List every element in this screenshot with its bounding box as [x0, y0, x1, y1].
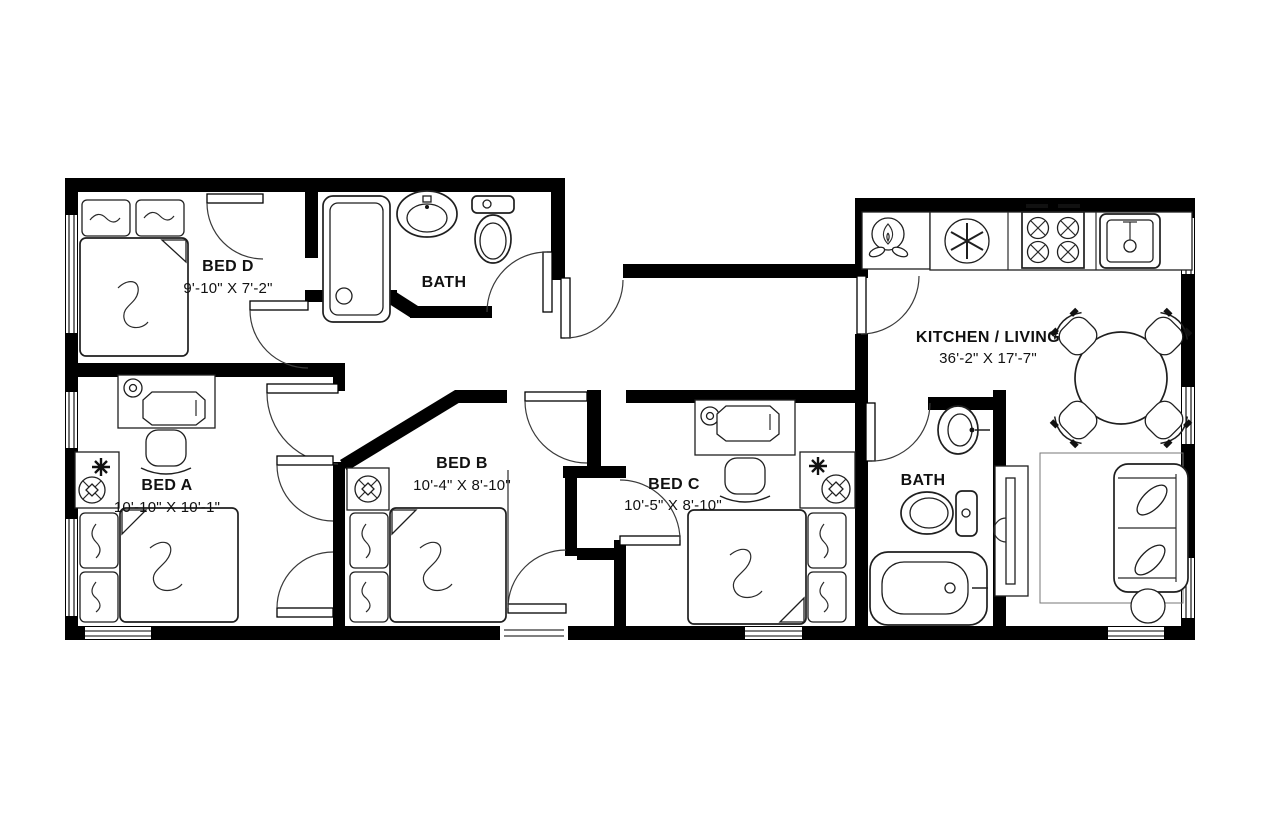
window: [66, 392, 77, 448]
room-dims-bed-a: 10'-10" X 10'-1": [114, 499, 220, 516]
range-stove: [1022, 204, 1084, 268]
kitchen-sink: [1100, 214, 1160, 268]
bathroom-sink: [938, 406, 990, 454]
bathroom-sink: [397, 191, 457, 237]
window: [66, 519, 77, 616]
round-side-table: [1131, 589, 1165, 623]
room-dims-bed-c: 10'-5" X 8'-10": [624, 497, 722, 514]
closet-door-upper: [277, 456, 333, 521]
sofa: [1114, 464, 1188, 592]
room-bed-d: BED D 9'-10" X 7'-2": [80, 200, 273, 356]
shower: [323, 196, 390, 322]
toilet: [901, 491, 977, 536]
double-bed: [80, 200, 188, 356]
door-bath-right: [866, 403, 930, 461]
desk: [118, 375, 215, 428]
window: [745, 627, 802, 639]
water-heater: [862, 212, 930, 269]
tv-console: [994, 466, 1028, 596]
window: [1108, 627, 1164, 639]
double-bed: [688, 510, 846, 624]
room-bed-a: BED A 10'-10" X 10'-1": [75, 375, 238, 622]
room-label-bed-b: BED B: [436, 455, 488, 472]
floor-plan-page: BED D 9'-10" X 7'-2" BATH: [0, 0, 1280, 828]
room-label-kitchen-living: KITCHEN / LIVING: [916, 329, 1060, 346]
desk-chair: [141, 430, 191, 474]
window: [85, 627, 151, 639]
room-bath-right: BATH: [870, 406, 990, 625]
room-bed-b: BED B 10'-4" X 8'-10": [347, 455, 511, 622]
ceiling-fan-light-icon: [79, 477, 105, 503]
room-dims-bed-b: 10'-4" X 8'-10": [413, 477, 511, 494]
door-bed-b: [525, 392, 587, 463]
desk-chair: [720, 458, 770, 502]
desk: [695, 400, 795, 455]
room-dims-kitchen-living: 36'-2" X 17'-7": [939, 350, 1037, 367]
toilet: [472, 196, 514, 263]
room-label-bath-right: BATH: [901, 472, 946, 489]
ceiling-fan-light-icon: [822, 475, 850, 503]
room-dims-bed-d: 9'-10" X 7'-2": [183, 280, 272, 297]
room-bed-c: BED C 10'-5" X 8'-10": [624, 400, 855, 624]
door-bed-a: [267, 384, 338, 464]
room-label-bath-top: BATH: [422, 274, 467, 291]
bathtub: [870, 552, 988, 625]
door-bed-d: [207, 194, 263, 259]
door-entry: [500, 550, 568, 640]
double-bed: [80, 508, 238, 622]
door-hallway: [561, 278, 623, 338]
room-label-bed-c: BED C: [648, 476, 700, 493]
door-hall-upper: [250, 301, 308, 368]
door-kitchen: [857, 276, 919, 334]
window: [66, 215, 77, 333]
room-bath-top: BATH: [323, 191, 514, 322]
room-label-bed-a: BED A: [141, 477, 192, 494]
window: [1182, 387, 1194, 444]
closet-door-lower: [277, 552, 333, 617]
room-label-bed-d: BED D: [202, 258, 254, 275]
double-bed: [350, 508, 506, 622]
ceiling-fan-light-icon: [355, 476, 381, 502]
refrigerator-icon: [945, 219, 989, 263]
floor-plan-drawing: BED D 9'-10" X 7'-2" BATH: [0, 0, 1280, 828]
